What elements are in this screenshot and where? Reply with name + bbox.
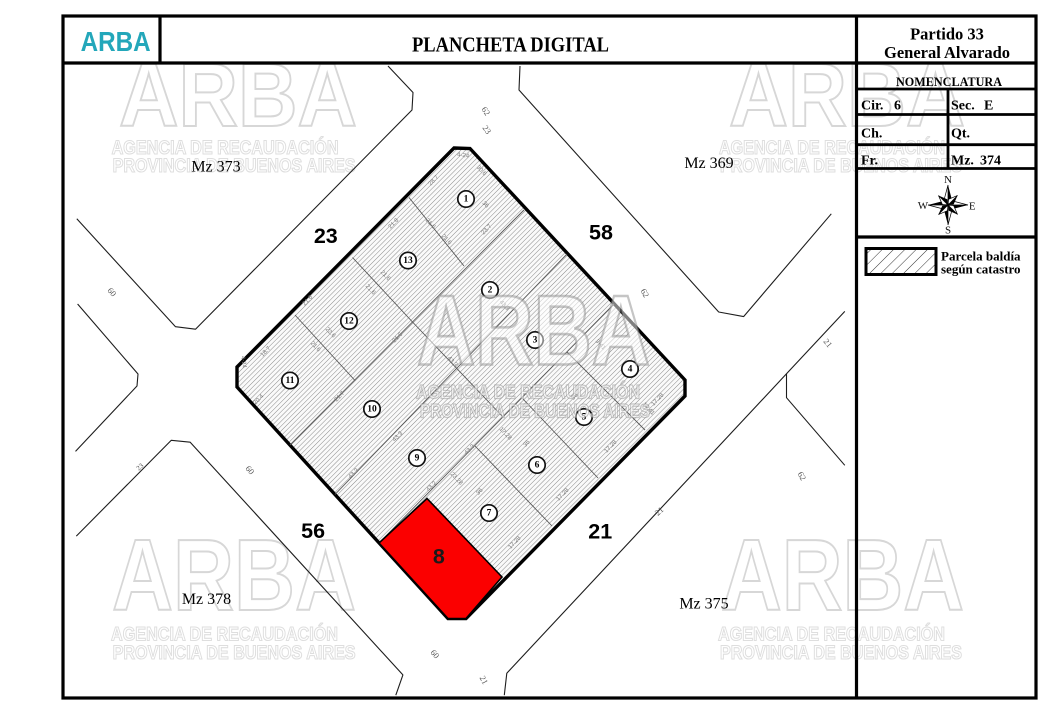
svg-text:13: 13 xyxy=(403,256,413,266)
svg-text:Cir.: Cir. xyxy=(861,99,883,114)
svg-text:ARBA: ARBA xyxy=(119,46,357,146)
svg-text:7: 7 xyxy=(487,509,492,519)
svg-text:PROVINCIA DE BUENOS AIRES: PROVINCIA DE BUENOS AIRES xyxy=(113,643,356,664)
svg-text:PROVINCIA DE BUENOS AIRES: PROVINCIA DE BUENOS AIRES xyxy=(720,643,962,664)
svg-text:ARBA: ARBA xyxy=(721,520,964,632)
svg-text:N: N xyxy=(944,174,952,186)
svg-text:Fr.: Fr. xyxy=(861,154,878,169)
svg-text:374: 374 xyxy=(980,154,1001,169)
svg-text:ARBA: ARBA xyxy=(417,275,650,386)
svg-text:Mz 375: Mz 375 xyxy=(679,596,728,613)
svg-text:21: 21 xyxy=(588,520,612,544)
svg-text:6: 6 xyxy=(894,99,901,114)
svg-text:10: 10 xyxy=(367,405,377,415)
svg-text:21: 21 xyxy=(478,674,491,686)
svg-text:según catastro: según catastro xyxy=(941,262,1021,277)
svg-text:23: 23 xyxy=(314,224,338,248)
svg-text:62: 62 xyxy=(479,105,492,118)
svg-text:General Alvarado: General Alvarado xyxy=(884,43,1010,62)
svg-text:E: E xyxy=(969,201,976,213)
svg-text:60: 60 xyxy=(243,464,256,477)
svg-text:9: 9 xyxy=(415,454,420,464)
svg-text:11: 11 xyxy=(286,376,295,386)
svg-text:62: 62 xyxy=(796,470,809,482)
svg-text:56: 56 xyxy=(301,519,325,543)
svg-text:23: 23 xyxy=(480,123,493,136)
svg-text:23: 23 xyxy=(135,461,146,472)
svg-text:PROVINCIA DE BUENOS AIRES: PROVINCIA DE BUENOS AIRES xyxy=(420,401,650,422)
svg-text:E: E xyxy=(984,99,993,114)
svg-text:NOMENCLATURA: NOMENCLATURA xyxy=(896,74,1003,89)
svg-text:Mz 373: Mz 373 xyxy=(191,159,240,176)
svg-text:6: 6 xyxy=(535,461,540,471)
svg-text:8: 8 xyxy=(433,545,445,569)
svg-text:Qt.: Qt. xyxy=(951,127,970,142)
svg-text:60: 60 xyxy=(105,286,118,299)
svg-text:58: 58 xyxy=(589,221,613,245)
svg-text:S: S xyxy=(945,225,951,237)
svg-text:12: 12 xyxy=(344,317,354,327)
svg-text:Mz 369: Mz 369 xyxy=(684,155,733,172)
svg-text:1: 1 xyxy=(464,195,469,205)
svg-text:PLANCHETA DIGITAL: PLANCHETA DIGITAL xyxy=(412,33,609,57)
svg-text:PROVINCIA DE BUENOS AIRES: PROVINCIA DE BUENOS AIRES xyxy=(720,156,962,177)
svg-text:Sec.: Sec. xyxy=(951,99,975,114)
svg-text:AGENCIA DE RECAUDACIÓN: AGENCIA DE RECAUDACIÓN xyxy=(416,381,640,403)
svg-text:Partido 33: Partido 33 xyxy=(910,25,984,44)
svg-text:21: 21 xyxy=(821,337,834,350)
svg-text:W: W xyxy=(918,200,929,212)
svg-text:60: 60 xyxy=(428,648,441,661)
svg-text:Ch.: Ch. xyxy=(861,127,882,142)
svg-text:ARBA: ARBA xyxy=(81,26,151,57)
svg-text:Mz 378: Mz 378 xyxy=(182,591,231,608)
svg-text:Mz.: Mz. xyxy=(951,154,974,169)
